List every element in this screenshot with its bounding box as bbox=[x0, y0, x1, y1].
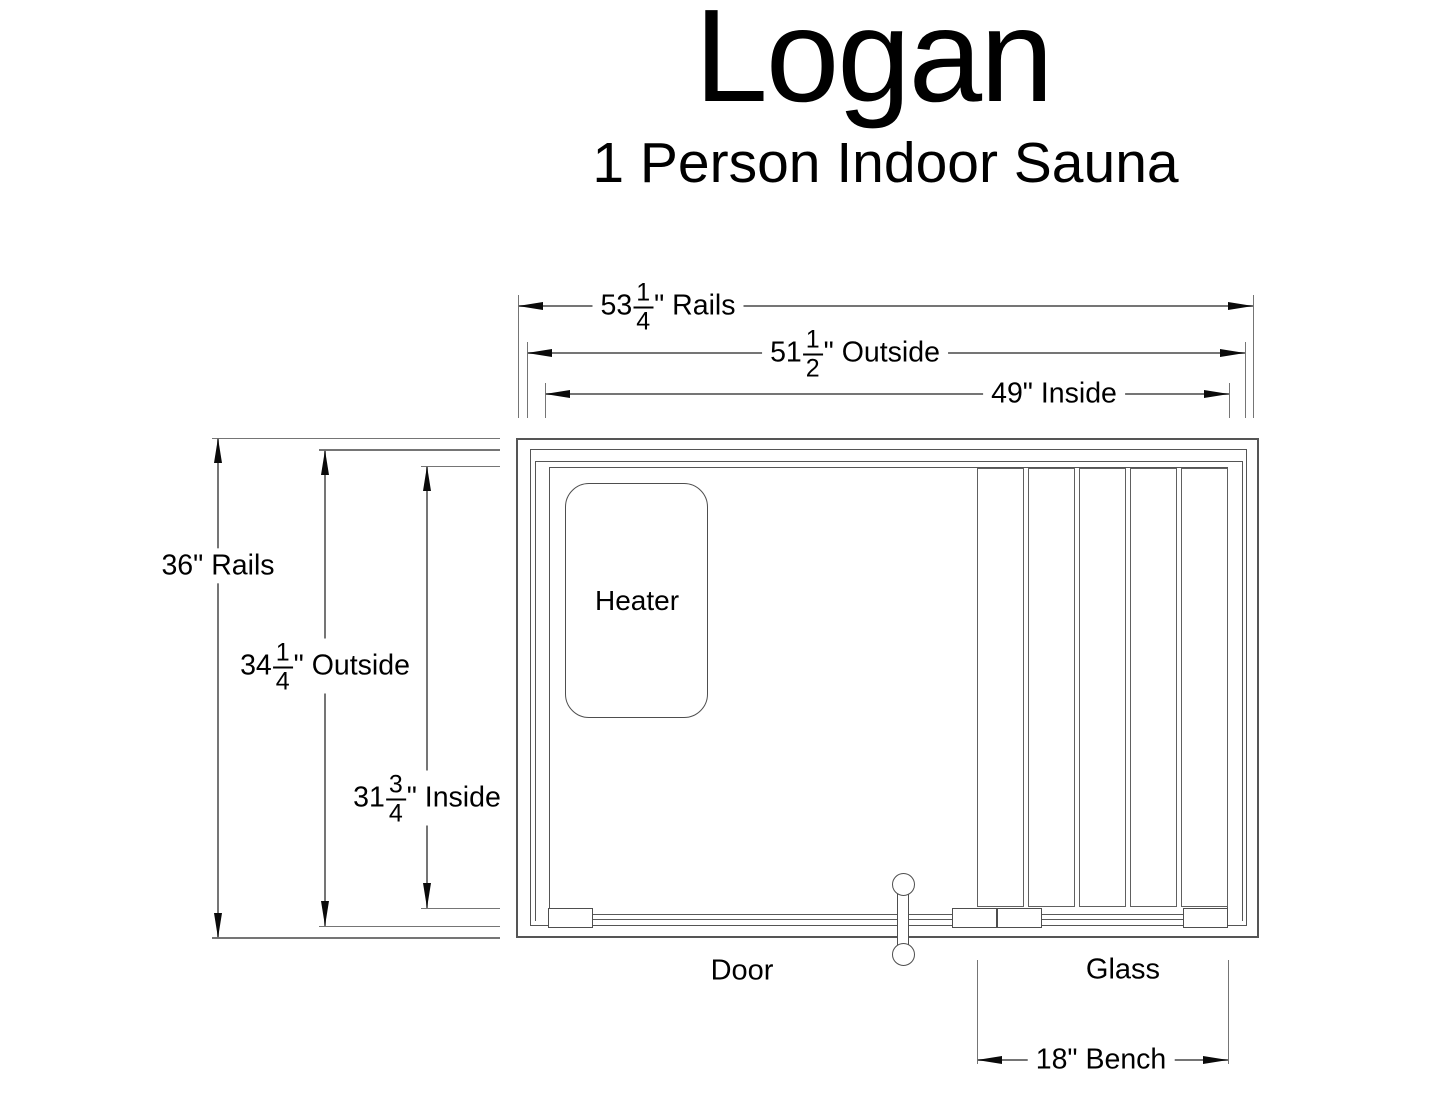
dim-line bbox=[545, 393, 1229, 395]
door-latch-post bbox=[952, 908, 997, 928]
ext-line bbox=[212, 438, 500, 440]
ext-line bbox=[319, 926, 500, 928]
ext-line bbox=[518, 295, 520, 418]
ext-line bbox=[1253, 295, 1255, 418]
bench-board bbox=[1130, 468, 1177, 907]
fraction: 14 bbox=[633, 281, 653, 332]
dim-value: 31 bbox=[353, 782, 385, 813]
dim-inside-height-label: 3134" Inside bbox=[345, 771, 509, 826]
fraction-denominator: 4 bbox=[636, 308, 650, 332]
ext-line bbox=[421, 908, 500, 910]
door-handle-knob-inside bbox=[892, 943, 915, 966]
dim-suffix: " Inside bbox=[1023, 378, 1117, 409]
door-handle-bar bbox=[897, 890, 909, 946]
dim-value: 34 bbox=[240, 650, 272, 681]
dim-suffix: " Rails bbox=[193, 550, 274, 581]
sauna-spec-diagram: Logan 1 Person Indoor Sauna Heater Door … bbox=[0, 0, 1445, 1117]
fraction: 34 bbox=[386, 773, 406, 824]
dim-rails-height-label: 36" Rails bbox=[153, 548, 282, 583]
arrowhead-up-icon bbox=[321, 450, 329, 475]
arrowhead-down-icon bbox=[423, 883, 431, 908]
arrowhead-left-icon bbox=[518, 302, 543, 310]
ext-line bbox=[212, 937, 500, 939]
fraction-denominator: 2 bbox=[806, 355, 820, 379]
fraction-numerator: 1 bbox=[803, 328, 823, 356]
arrowhead-right-icon bbox=[1204, 390, 1229, 398]
arrowhead-left-icon bbox=[527, 349, 552, 357]
glass-panel bbox=[1042, 914, 1183, 920]
glass-frame-post bbox=[997, 908, 1042, 928]
dim-value: 18 bbox=[1036, 1044, 1068, 1075]
dim-inside-width-label: 49" Inside bbox=[983, 376, 1125, 411]
bench-board bbox=[977, 468, 1024, 907]
dim-suffix: " Outside bbox=[294, 650, 410, 681]
fraction-numerator: 1 bbox=[633, 281, 653, 309]
dim-outside-width-label: 5112" Outside bbox=[762, 326, 948, 381]
dim-value: 53 bbox=[601, 290, 633, 321]
page-subtitle: 1 Person Indoor Sauna bbox=[448, 134, 1323, 194]
arrowhead-up-icon bbox=[423, 466, 431, 491]
arrowhead-up-icon bbox=[214, 438, 222, 463]
ext-line bbox=[421, 466, 500, 468]
ext-line bbox=[545, 383, 547, 418]
glass-label: Glass bbox=[1086, 954, 1160, 987]
arrowhead-left-icon bbox=[977, 1056, 1002, 1064]
fraction: 14 bbox=[273, 641, 293, 692]
dim-line bbox=[426, 466, 428, 908]
fraction: 12 bbox=[803, 328, 823, 379]
ext-line bbox=[977, 960, 979, 1064]
corner-frame-post bbox=[1183, 908, 1228, 928]
page-title: Logan bbox=[448, 0, 1298, 126]
dim-suffix: " Bench bbox=[1067, 1044, 1166, 1075]
dim-value: 36 bbox=[161, 550, 193, 581]
bench-board bbox=[1181, 468, 1228, 907]
dim-suffix: " Inside bbox=[407, 782, 501, 813]
arrowhead-right-icon bbox=[1228, 302, 1253, 310]
dim-suffix: " Outside bbox=[824, 337, 940, 368]
door-jamb-post bbox=[548, 908, 593, 928]
door-handle-knob-outside bbox=[892, 873, 915, 896]
dim-value: 49 bbox=[991, 378, 1023, 409]
bench-board bbox=[1028, 468, 1075, 907]
arrowhead-left-icon bbox=[545, 390, 570, 398]
door-label: Door bbox=[711, 955, 774, 988]
ext-line bbox=[1228, 960, 1230, 1064]
dim-suffix: " Rails bbox=[654, 290, 735, 321]
fraction-numerator: 3 bbox=[386, 773, 406, 801]
heater-label: Heater bbox=[595, 585, 679, 617]
fraction-numerator: 1 bbox=[273, 641, 293, 669]
dim-outside-height-label: 3414" Outside bbox=[232, 639, 418, 694]
bench-board bbox=[1079, 468, 1126, 907]
arrowhead-down-icon bbox=[321, 901, 329, 926]
arrowhead-right-icon bbox=[1220, 349, 1245, 357]
arrowhead-down-icon bbox=[214, 913, 222, 938]
dim-rails-width-label: 5314" Rails bbox=[593, 279, 744, 334]
ext-line bbox=[319, 449, 500, 451]
dim-line bbox=[217, 438, 219, 938]
dim-bench-width-label: 18" Bench bbox=[1028, 1042, 1175, 1077]
fraction-denominator: 4 bbox=[389, 800, 403, 824]
dim-value: 51 bbox=[770, 337, 802, 368]
ext-line bbox=[1229, 383, 1231, 418]
arrowhead-right-icon bbox=[1203, 1056, 1228, 1064]
fraction-denominator: 4 bbox=[276, 668, 290, 692]
